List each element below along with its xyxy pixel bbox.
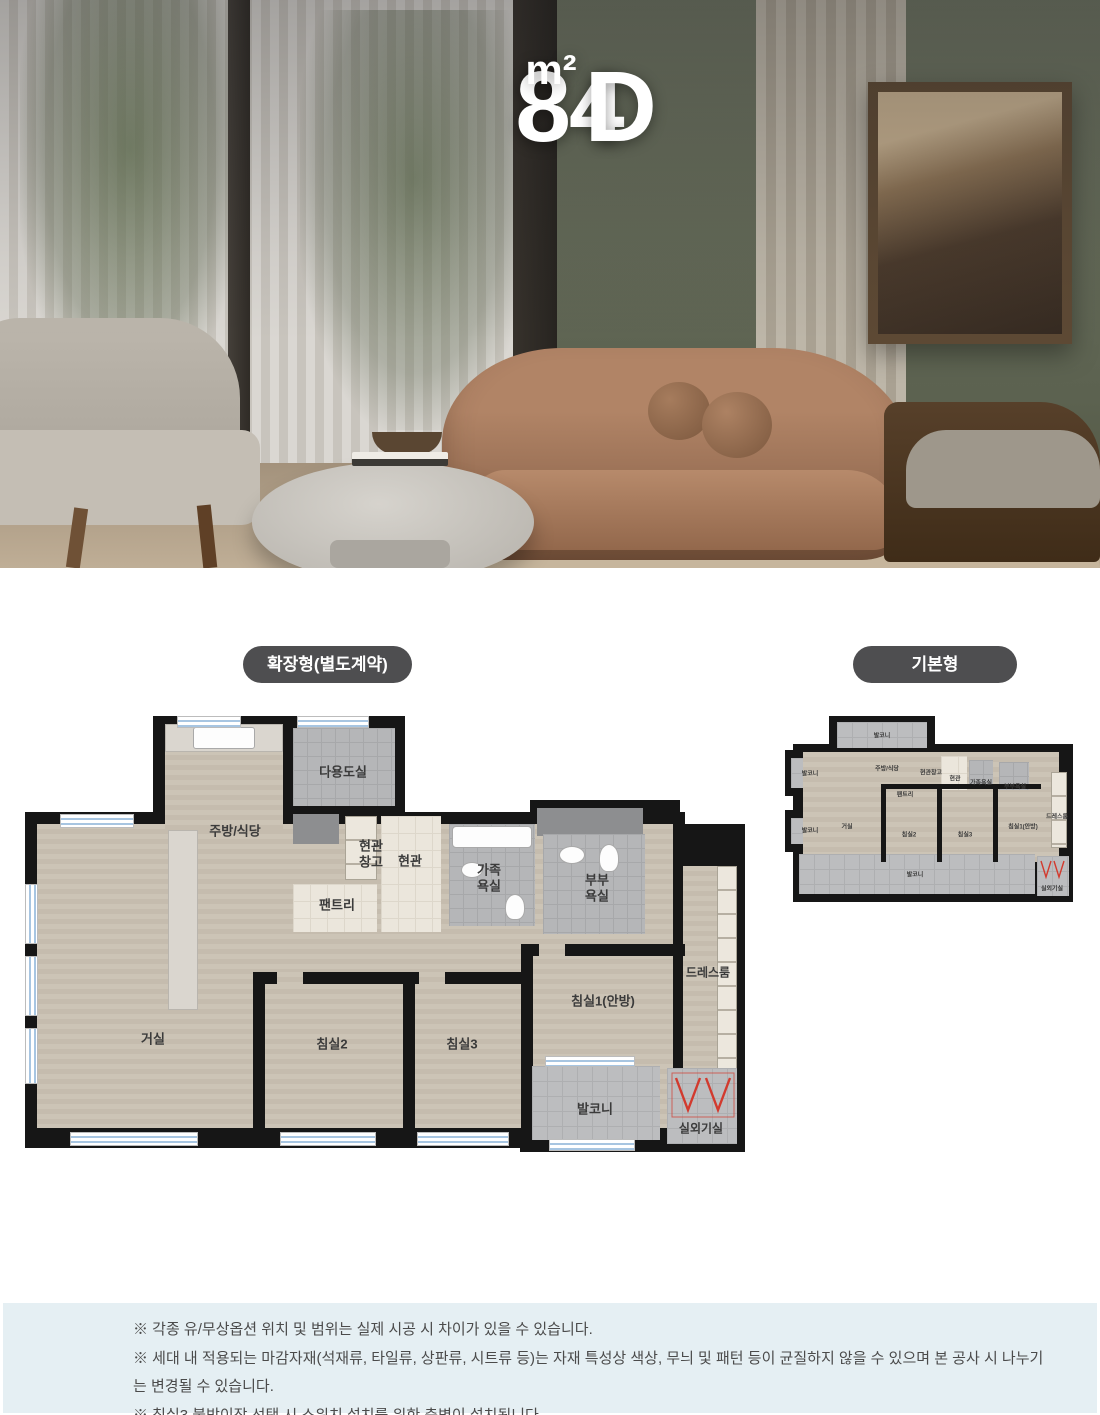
room-label-dressroom: 드레스룸 [686,964,730,981]
room-label-bedroom3: 침실3 [446,1034,477,1053]
dressroom-shelves [1051,772,1067,848]
window-symbol [177,716,241,728]
room-label-family-bath: 가족욕실 [472,862,506,893]
room-label-master-bath: 부부욕실 [1004,782,1026,791]
room-label-living: 거실 [141,1029,165,1048]
room-label-kitchen: 주방/식당 [875,764,899,773]
room-label-kitchen: 주방/식당 [209,821,260,840]
room-label-pantry: 팬트리 [897,790,914,799]
toilet [505,894,525,920]
window-symbol [25,956,38,1016]
room-label-living: 거실 [841,822,852,831]
window-symbol [417,1132,509,1146]
ac-unit-marks [1039,858,1067,882]
kitchen-floor [165,750,283,830]
room-label-balcony: 발코니 [802,769,819,778]
entry-floor [381,816,441,932]
room-label-balcony: 발코니 [874,731,891,740]
window-symbol [70,1132,198,1146]
window-symbol [60,814,134,828]
toilet [599,844,619,872]
storage-box [293,814,339,844]
hero-photo: 84m²D 55세대 전용면적 : 84.9452m² | 공급면적 : 111… [0,0,1100,568]
sink-stove [193,727,255,749]
wall [881,786,886,862]
room-label-dressroom: 드레스룸 [1046,812,1068,821]
room-label-bedroom1: 침실1(안방) [1008,822,1037,831]
room-label-balcony: 발코니 [907,870,924,879]
wall [937,786,942,862]
door-opening [419,972,445,984]
closet-box [537,808,643,836]
room-label-entry: 현관 [398,851,422,870]
wall [253,972,265,1128]
sink [559,846,585,864]
room-label-bedroom2: 침실2 [316,1034,347,1053]
wall [403,984,415,1128]
room-label-ac-room: 실외기실 [679,1120,723,1137]
room-label-entry-storage: 현관창고 [354,838,388,869]
window-symbol [25,1028,38,1084]
bathtub [452,826,532,848]
room-label-balcony: 발코니 [577,1099,613,1118]
note-line: ※ 세대 내 적용되는 마감자재(석재류, 타일류, 상판류, 시트류 등)는 … [133,1345,1057,1402]
title-unit: m² [525,46,576,93]
room-label-family-bath: 가족욕실 [970,778,992,787]
room-label-ac-room: 실외기실 [1041,884,1063,893]
room-label-balcony: 발코니 [802,826,819,835]
note-line: ※ 각종 유/무상옵션 위치 및 범위는 실제 시공 시 차이가 있을 수 있습… [133,1316,1057,1345]
window-symbol [25,884,38,944]
room-label-entry: 현관 [949,774,960,783]
kitchen-island [168,830,198,1010]
tab-basic-plan[interactable]: 기본형 [853,646,1017,683]
window-symbol [297,716,369,728]
door-opening [539,944,565,956]
room-label-bedroom1: 침실1(안방) [571,991,635,1010]
room-label-master-bath: 부부욕실 [580,872,614,903]
door-opening [277,972,303,984]
room-label-entry-storage: 현관창고 [920,768,942,777]
wall [993,786,998,862]
window-symbol [549,1139,635,1151]
window-symbol [280,1132,376,1146]
room-label-bedroom2: 침실2 [902,830,916,839]
room-label-utility: 다용도실 [319,762,367,781]
room-label-bedroom3: 침실3 [958,830,972,839]
unit-type-title: 84m²D [0,52,1100,100]
room-label-pantry: 팬트리 [319,895,355,914]
tab-extended-plan[interactable]: 확장형(별도계약) [243,646,412,683]
floorplan-basic: 발코니 발코니 주방/식당 현관창고 현관 가족욕실 부부욕실 팬트리 발코니 … [785,716,1073,908]
disclaimer-notes: ※ 각종 유/무상옵션 위치 및 범위는 실제 시공 시 차이가 있을 수 있습… [3,1303,1097,1413]
unit-type-page: 84m²D 55세대 전용면적 : 84.9452m² | 공급면적 : 111… [0,0,1100,1415]
window-symbol [545,1056,635,1067]
title-letter: D [585,52,655,162]
floorplan-extended: 다용도실 주방/식당 현관창고 현관 가족욕실 부부욕실 팬트리 드레스룸 침실… [25,716,745,1152]
ac-unit-marks [671,1072,735,1122]
note-line: ※ 침실3 붙박이장 선택 시 스위치 설치를 위한 측벽이 설치됩니다. [133,1402,1057,1415]
